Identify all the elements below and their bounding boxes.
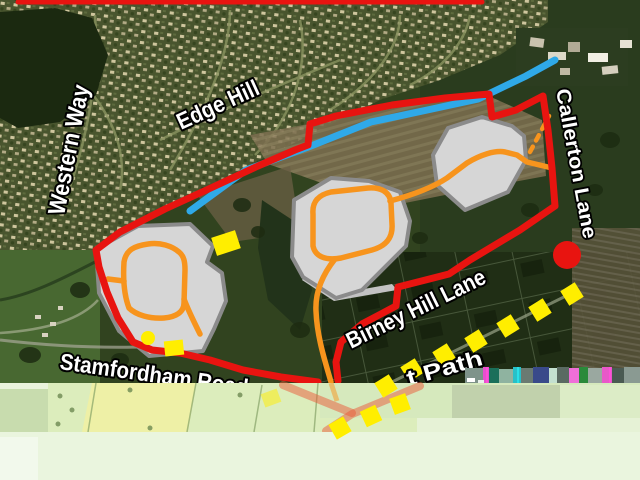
masterplan-slide: Western Way Edge Hill Callerton Lane Bir… (0, 0, 640, 480)
masterplan-map: Western Way Edge Hill Callerton Lane Bir… (0, 0, 640, 480)
faded-bottom-band (0, 374, 640, 480)
yellow-dot-marker (141, 331, 155, 345)
farm-buildings (516, 28, 632, 86)
red-circle-marker (553, 241, 581, 269)
glitch-artifact-band (465, 367, 640, 384)
yellow-square-marker (164, 340, 184, 357)
